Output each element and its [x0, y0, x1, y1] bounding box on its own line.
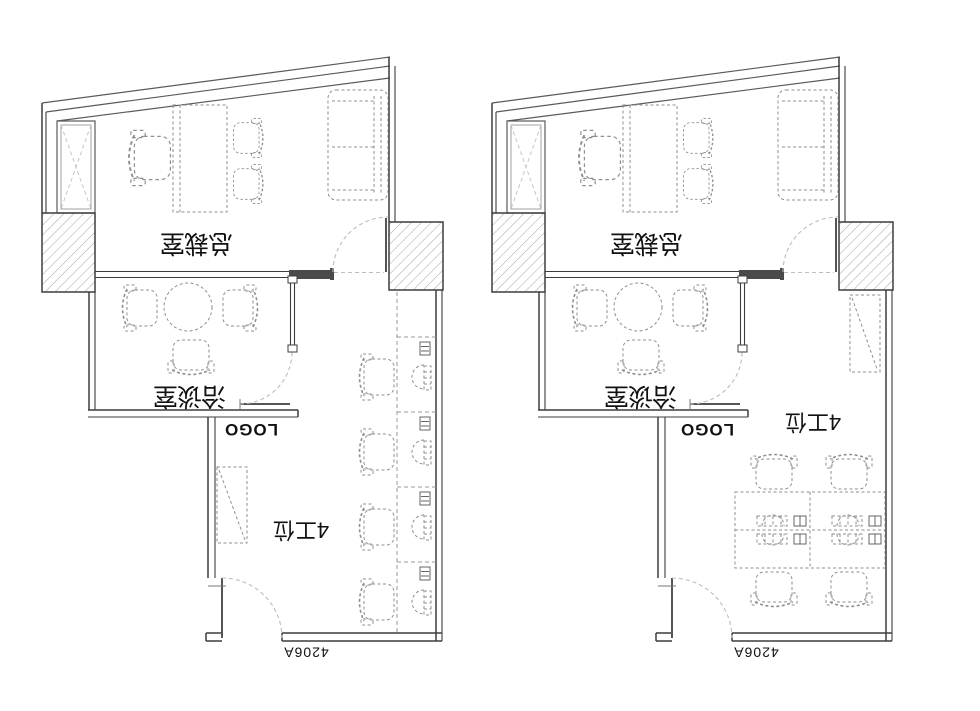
workstation-gear [757, 534, 806, 544]
label-logo: LOGO [211, 420, 291, 439]
office-chair [751, 455, 797, 490]
label-meeting-room: 洽谈室 [130, 382, 250, 410]
workstation-desk [360, 417, 432, 475]
cabinet [850, 295, 880, 372]
floorplan-drawing [0, 0, 980, 711]
office-chair [826, 572, 872, 607]
label-ceo-office: 总裁室 [137, 229, 257, 257]
workstation-gear [832, 534, 881, 544]
workstation-desk [360, 492, 432, 550]
label-workstations: 4工位 [251, 517, 351, 542]
workstation-gear [757, 516, 806, 526]
label-room-number: 4206A [716, 644, 796, 660]
workstation-cluster [735, 455, 885, 607]
office-chair [751, 572, 797, 607]
workstation-desk [360, 567, 432, 625]
label-meeting-room: 洽谈室 [581, 382, 701, 410]
label-logo: LOGO [667, 420, 747, 439]
workstation-gear [832, 516, 881, 526]
label-room-number: 4206A [266, 644, 346, 660]
cabinet [217, 467, 247, 543]
workstation-desk [360, 342, 432, 400]
workstation-zone [360, 292, 437, 632]
floorplan-canvas: 总裁室 洽谈室 LOGO 4工位 4206A 总裁室 洽谈室 LOGO 4工位 … [0, 0, 980, 711]
office-chair [826, 455, 872, 490]
label-ceo-office: 总裁室 [587, 229, 707, 257]
plan-right [492, 57, 893, 641]
plan-left [42, 57, 443, 641]
label-workstations: 4工位 [763, 409, 863, 434]
